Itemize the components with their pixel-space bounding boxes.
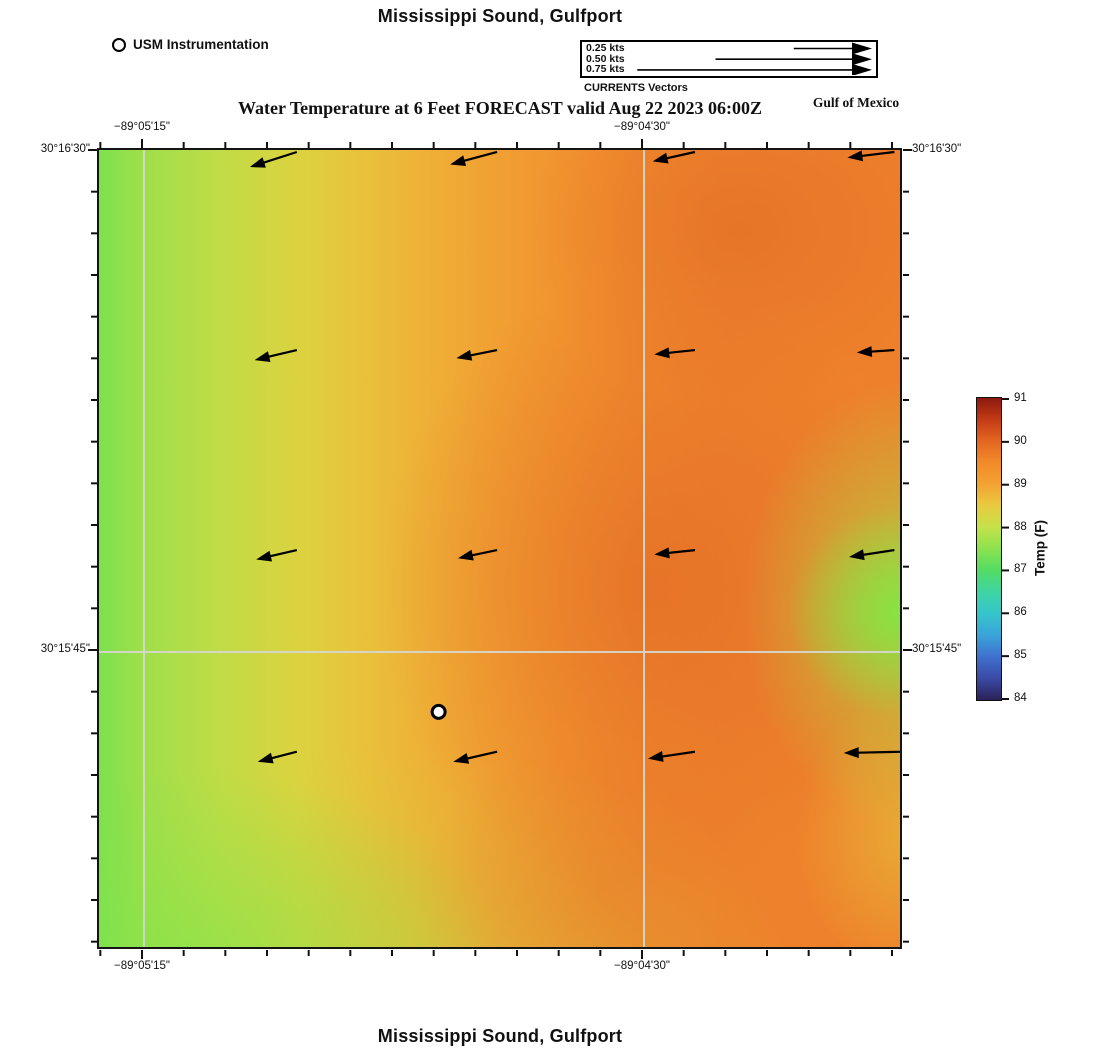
current-vector-arrow-head — [456, 350, 472, 361]
figure-title-top: Mississippi Sound, Gulfport — [97, 6, 903, 27]
axis-label-lon-bottom-west: −89°05'15" — [114, 960, 170, 972]
colorbar-tick-label: 91 — [1014, 392, 1027, 404]
colorbar-tick-label: 90 — [1014, 435, 1027, 447]
station-legend-label: USM Instrumentation — [133, 37, 269, 52]
colorbar-tick-label: 89 — [1014, 478, 1027, 490]
axis-label-lon-bottom-east: −89°04'30" — [614, 960, 670, 972]
axis-label-lon-top-west: −89°05'15" — [114, 121, 170, 133]
current-vector-arrow-head — [844, 747, 859, 758]
current-vector-arrow-shaft — [258, 152, 296, 164]
current-vector-arrow-shaft — [853, 752, 900, 753]
current-vector-arrow-head — [255, 351, 271, 362]
gulf-of-mexico-label: Gulf of Mexico — [808, 95, 904, 111]
legend-vector-arrow-head — [852, 43, 872, 55]
axis-label-lat-right-south: 30°15'45" — [912, 643, 961, 655]
station-legend: USM Instrumentation — [112, 37, 269, 52]
current-vector-arrow-head — [258, 753, 274, 764]
colorbar-gradient — [976, 397, 1002, 701]
current-vector-arrow-head — [256, 551, 272, 562]
currents-legend-labels: 0.25 kts 0.50 kts 0.75 kts — [586, 43, 625, 75]
currents-legend-entry-label: 0.25 kts — [586, 43, 625, 54]
current-vector-arrow-head — [847, 150, 863, 161]
colorbar-title: Temp (F) — [1033, 520, 1048, 576]
axis-label-lon-top-east: −89°04'30" — [614, 121, 670, 133]
station-marker-icon — [112, 38, 126, 52]
figure-title-bottom: Mississippi Sound, Gulfport — [97, 1026, 903, 1047]
current-vector-arrow-head — [453, 753, 469, 764]
currents-legend-entry-label: 0.75 kts — [586, 64, 625, 75]
current-vector-arrow-head — [849, 549, 865, 560]
map-plot — [97, 148, 902, 949]
figure-canvas: Mississippi Sound, Gulfport USM Instrume… — [0, 0, 1100, 1050]
current-vector-arrow-head — [648, 751, 664, 762]
axis-label-lat-right-north: 30°16'30" — [912, 143, 961, 155]
axis-label-lat-left-north: 30°16'30" — [0, 143, 90, 155]
colorbar-tick-label: 86 — [1014, 606, 1027, 618]
current-vector-arrow-head — [857, 346, 872, 357]
currents-legend-arrows — [582, 42, 875, 75]
colorbar-tick-label: 87 — [1014, 563, 1027, 575]
currents-legend-box: 0.25 kts 0.50 kts 0.75 kts — [580, 40, 878, 78]
current-vector-arrow-head — [654, 347, 670, 358]
current-vector-arrow-head — [250, 157, 266, 167]
current-vector-arrow-head — [653, 153, 669, 164]
colorbar-tick-label: 84 — [1014, 692, 1027, 704]
colorbar-tick-label: 88 — [1014, 521, 1027, 533]
map-vectors-layer — [99, 150, 900, 947]
legend-vector-arrow-head — [852, 53, 872, 65]
current-vector-arrow-head — [654, 547, 670, 558]
current-vector-arrow-head — [450, 155, 466, 166]
legend-vector-arrow-head — [852, 64, 872, 75]
forecast-title: Water Temperature at 6 Feet FORECAST val… — [97, 98, 903, 119]
axis-label-lat-left-south: 30°15'45" — [0, 643, 90, 655]
colorbar-tick-label: 85 — [1014, 649, 1027, 661]
station-marker — [432, 705, 445, 718]
current-vector-arrow-head — [458, 550, 474, 561]
currents-legend-caption: CURRENTS Vectors — [584, 82, 688, 94]
